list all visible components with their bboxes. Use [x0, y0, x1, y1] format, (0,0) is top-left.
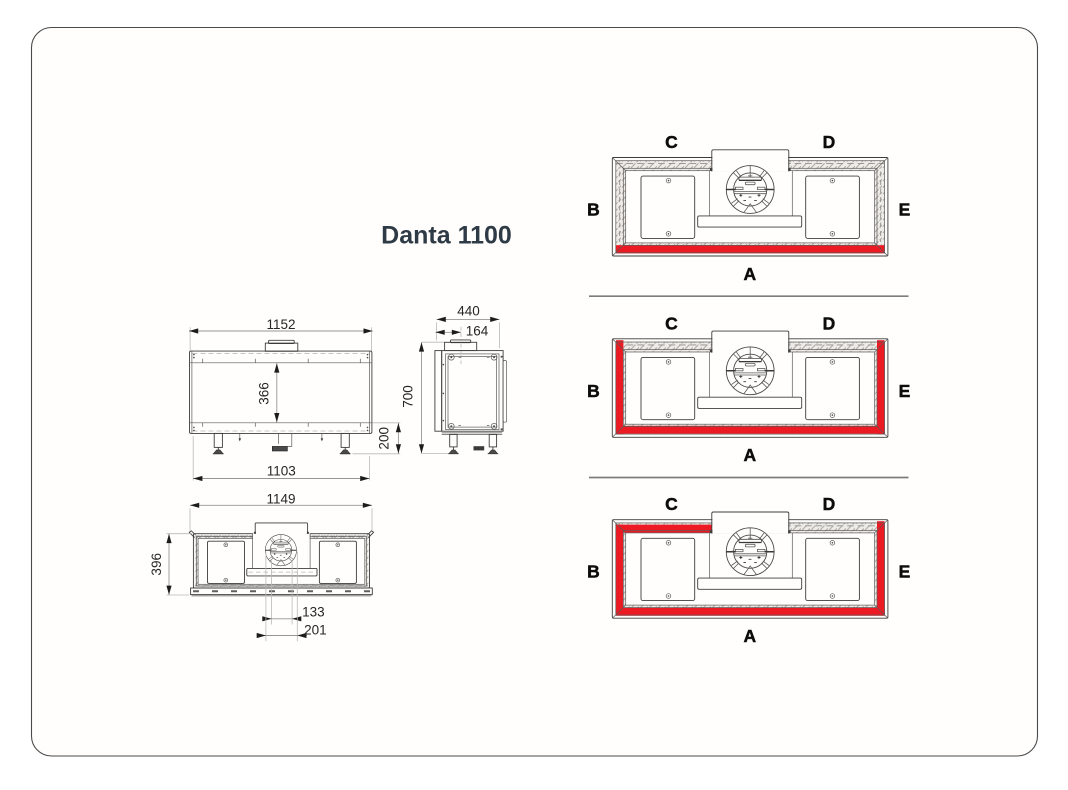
svg-text:C: C [665, 313, 678, 333]
svg-text:200: 200 [377, 427, 392, 450]
svg-text:396: 396 [149, 553, 164, 576]
svg-text:B: B [587, 381, 600, 401]
svg-text:A: A [743, 445, 756, 465]
svg-text:1103: 1103 [267, 464, 296, 479]
svg-text:133: 133 [302, 605, 325, 620]
svg-text:E: E [899, 200, 911, 220]
svg-text:D: D [823, 132, 836, 152]
svg-text:1152: 1152 [266, 317, 295, 332]
svg-text:C: C [665, 132, 678, 152]
svg-text:B: B [587, 562, 600, 582]
svg-text:700: 700 [401, 385, 416, 408]
svg-text:201: 201 [304, 623, 327, 638]
svg-text:Danta 1100: Danta 1100 [381, 222, 512, 250]
svg-text:440: 440 [457, 304, 480, 319]
svg-text:164: 164 [466, 323, 489, 338]
svg-text:B: B [587, 200, 600, 220]
svg-text:E: E [899, 562, 911, 582]
svg-text:E: E [899, 381, 911, 401]
svg-text:A: A [743, 626, 756, 646]
svg-text:D: D [823, 494, 836, 514]
svg-text:366: 366 [257, 382, 272, 405]
svg-text:D: D [823, 313, 836, 333]
svg-text:A: A [743, 264, 756, 284]
svg-text:C: C [665, 494, 678, 514]
svg-text:1149: 1149 [266, 491, 295, 506]
